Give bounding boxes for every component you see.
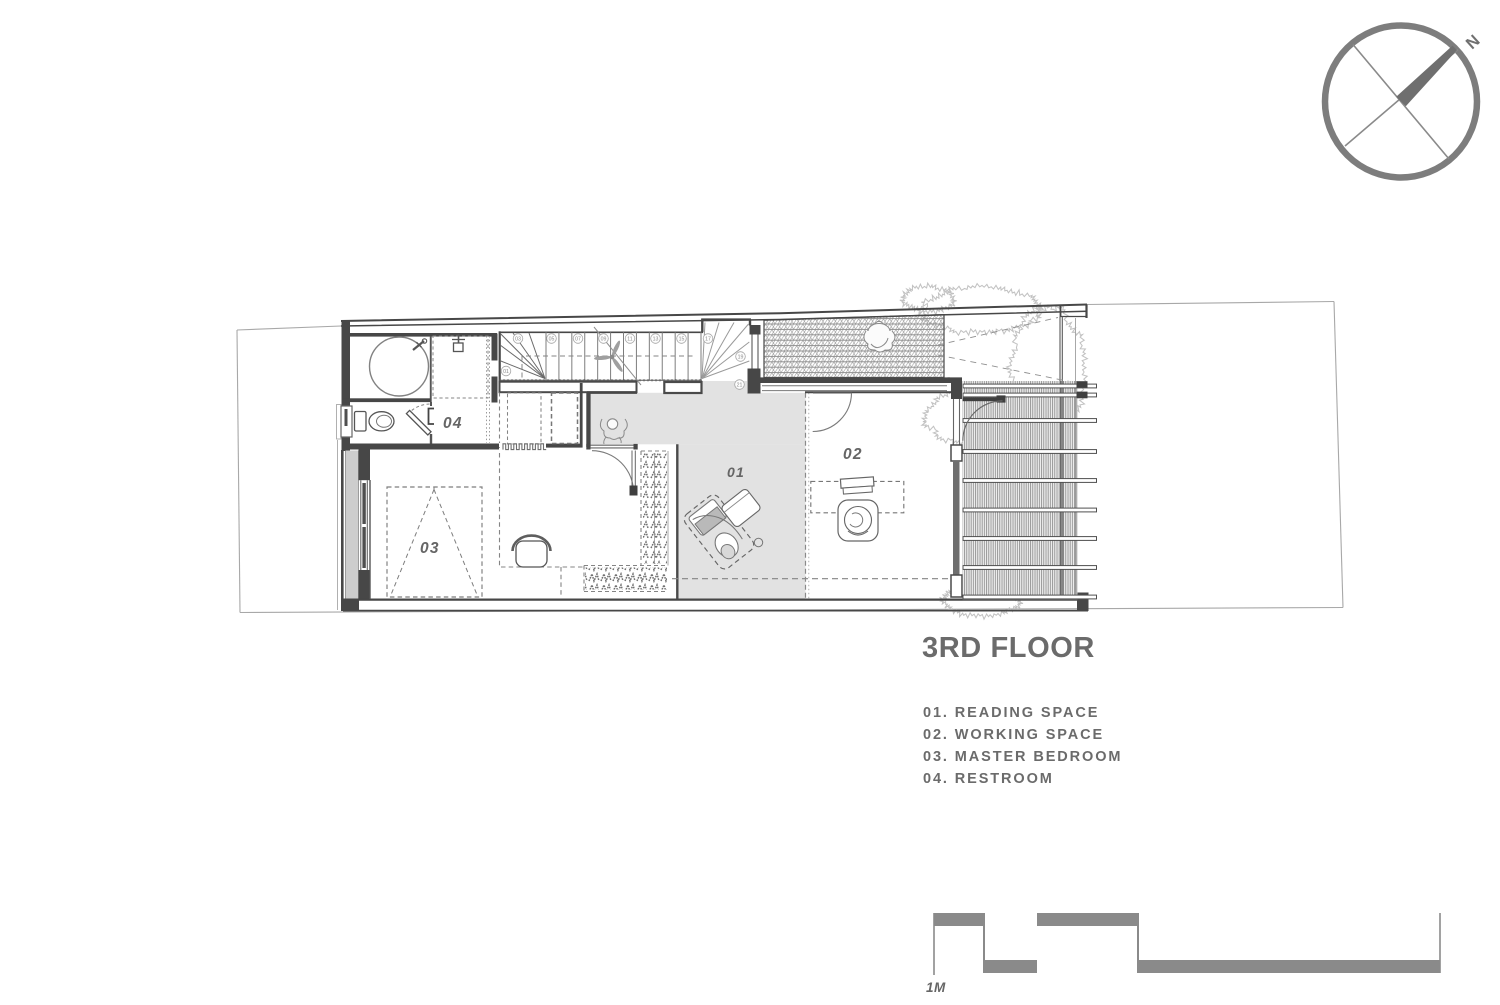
svg-text:21: 21: [737, 382, 743, 388]
svg-text:3RD FLOOR: 3RD FLOOR: [922, 632, 1095, 664]
svg-text:01. READING SPACE: 01. READING SPACE: [923, 705, 1099, 721]
svg-text:07: 07: [575, 336, 581, 342]
svg-text:03: 03: [515, 336, 521, 342]
svg-text:1M: 1M: [926, 980, 946, 995]
svg-text:13: 13: [653, 336, 659, 342]
svg-text:09: 09: [601, 336, 607, 342]
svg-text:02. WORKING SPACE: 02. WORKING SPACE: [923, 727, 1104, 743]
svg-text:03: 03: [420, 540, 440, 557]
svg-text:19: 19: [738, 354, 744, 360]
svg-text:15: 15: [679, 336, 685, 342]
svg-text:17: 17: [705, 336, 711, 342]
svg-text:02: 02: [843, 446, 863, 463]
svg-text:03. MASTER BEDROOM: 03. MASTER BEDROOM: [923, 749, 1122, 765]
svg-text:01: 01: [727, 464, 745, 480]
svg-text:05: 05: [549, 336, 555, 342]
svg-text:04. RESTROOM: 04. RESTROOM: [923, 771, 1054, 787]
svg-text:04: 04: [443, 415, 463, 432]
svg-text:01: 01: [503, 369, 509, 375]
svg-text:11: 11: [627, 336, 632, 342]
